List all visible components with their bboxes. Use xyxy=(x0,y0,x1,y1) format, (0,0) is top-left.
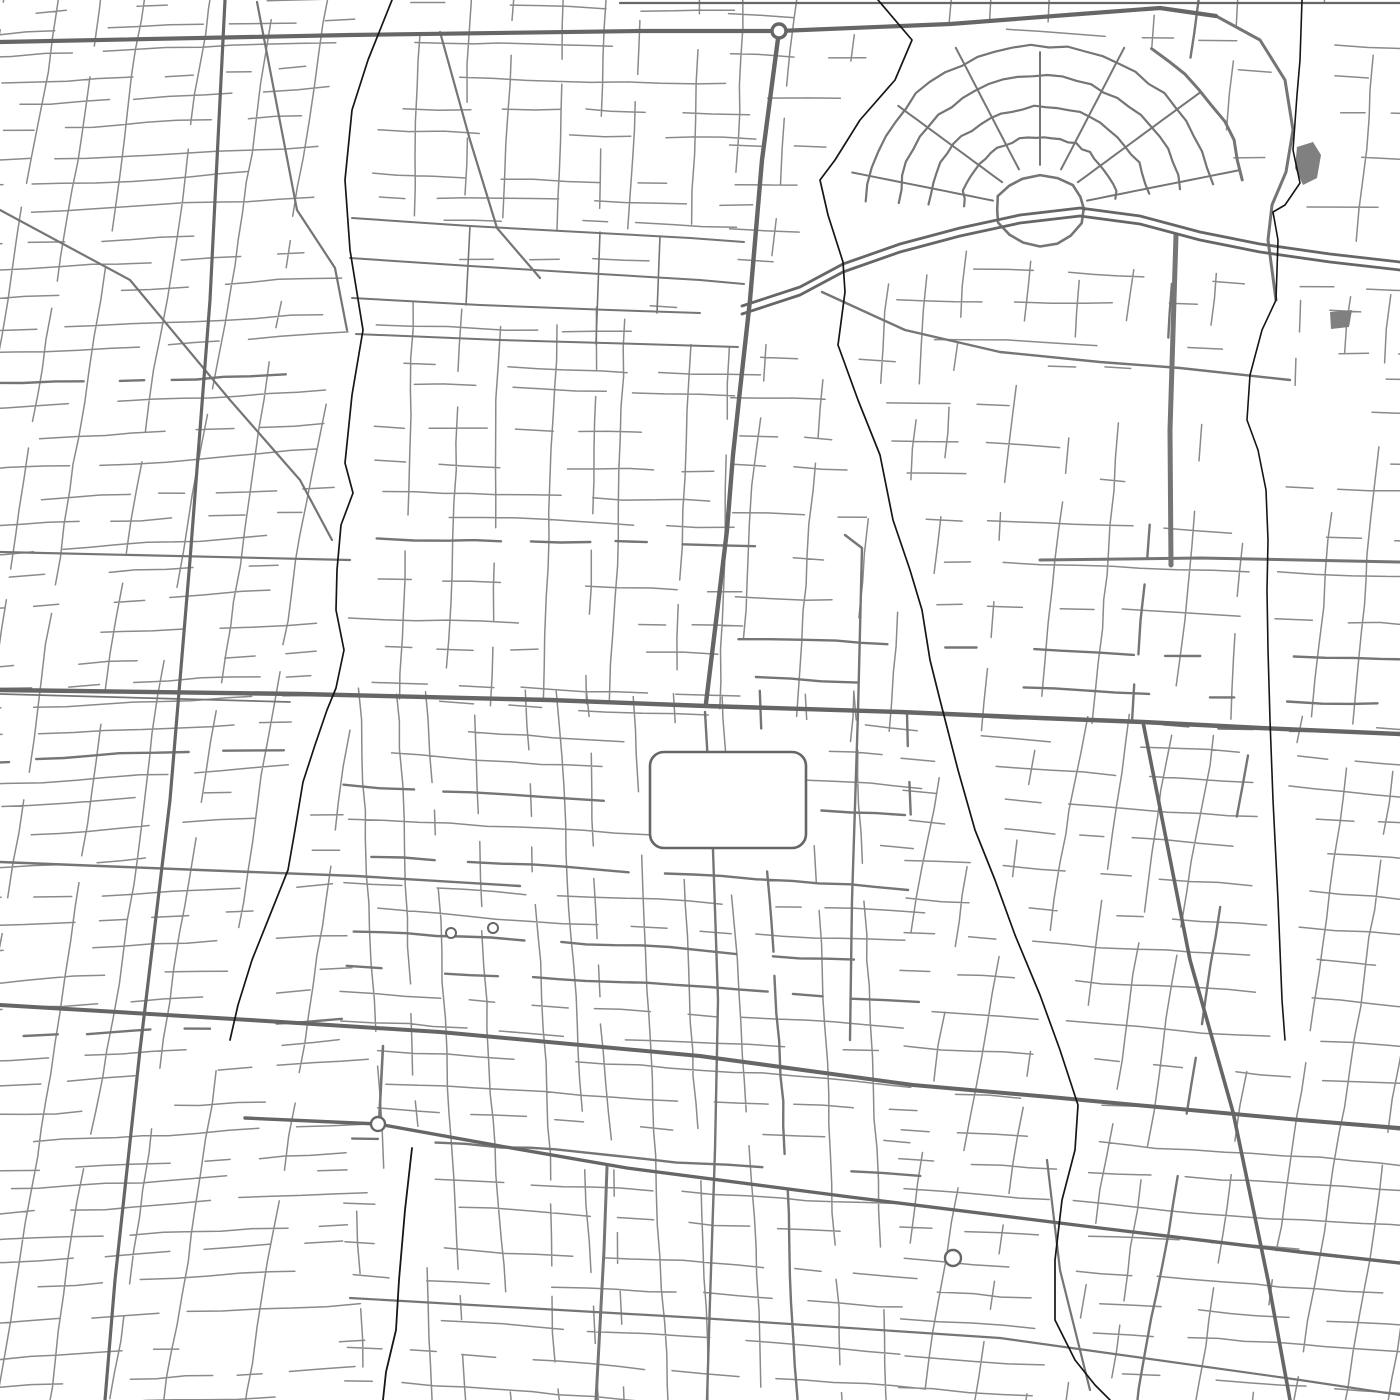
streams-layer xyxy=(230,0,1302,1400)
fan-district-layer xyxy=(852,45,1242,247)
city-map xyxy=(0,0,1400,1400)
secondary-roads-layer xyxy=(0,2,1400,1400)
street-map-canvas xyxy=(0,0,1400,1400)
